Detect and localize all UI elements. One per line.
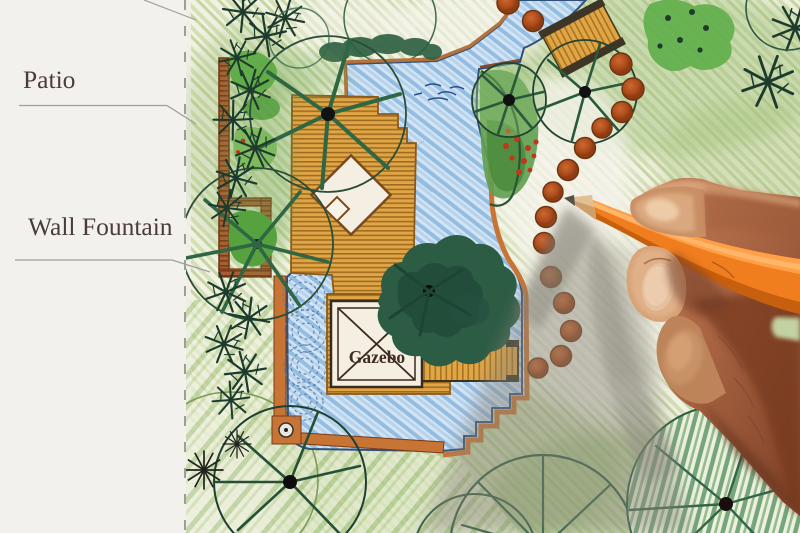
svg-text:Patio: Patio	[23, 65, 75, 94]
svg-text:Wall Fountain: Wall Fountain	[28, 212, 173, 241]
svg-text:Gazebo: Gazebo	[349, 347, 406, 367]
